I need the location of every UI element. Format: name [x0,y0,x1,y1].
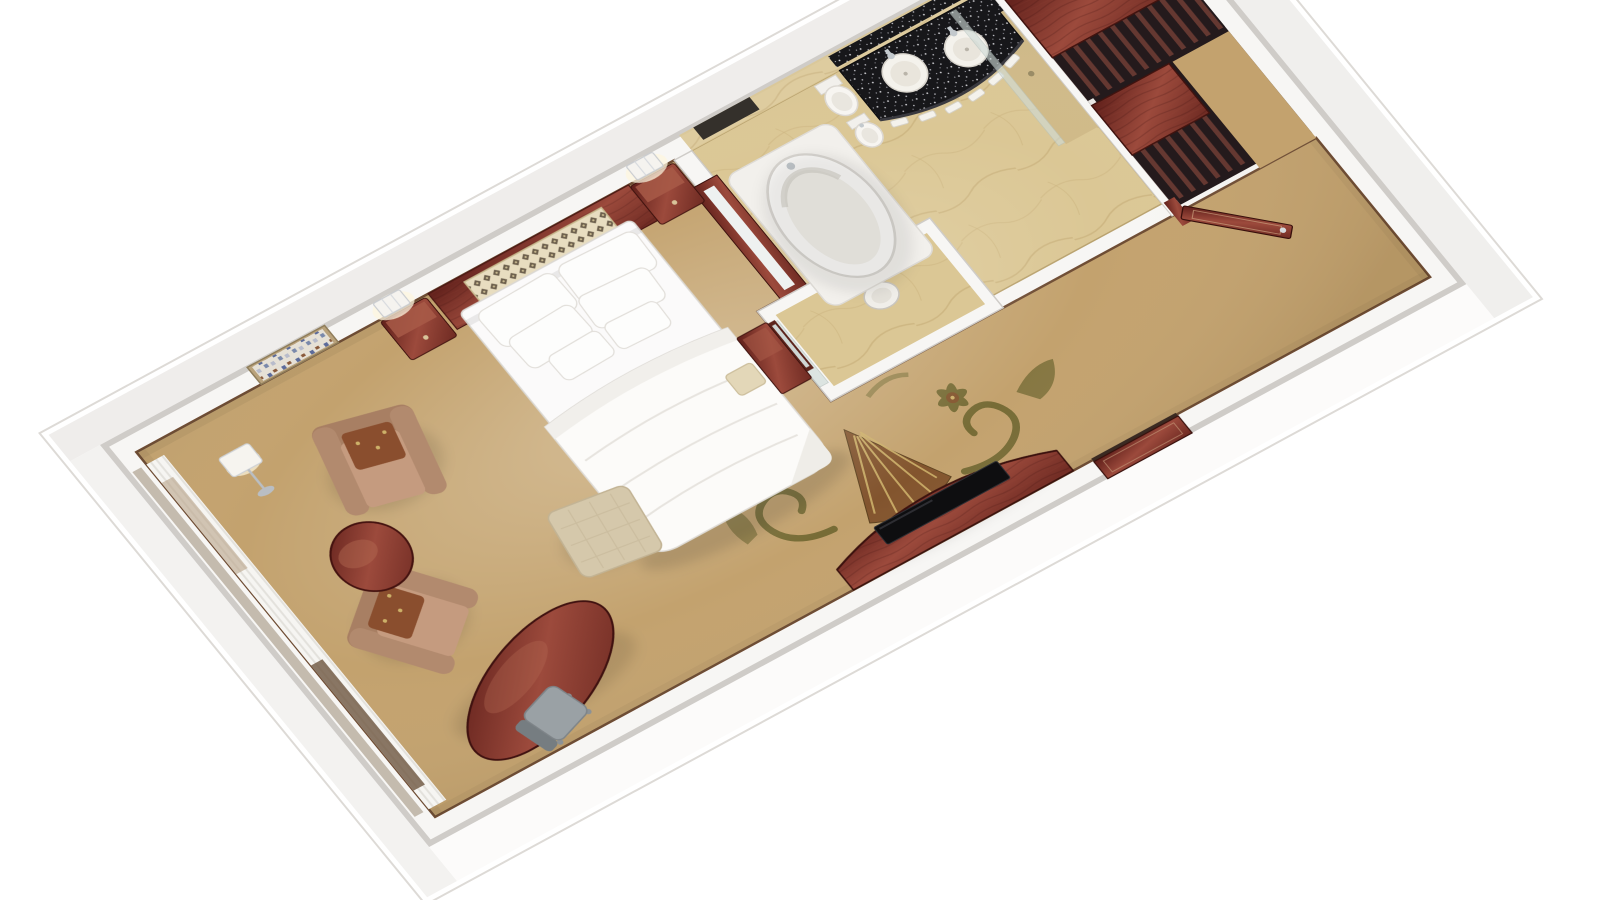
floor-plan-svg [0,0,1600,900]
render-canvas [0,0,1600,900]
